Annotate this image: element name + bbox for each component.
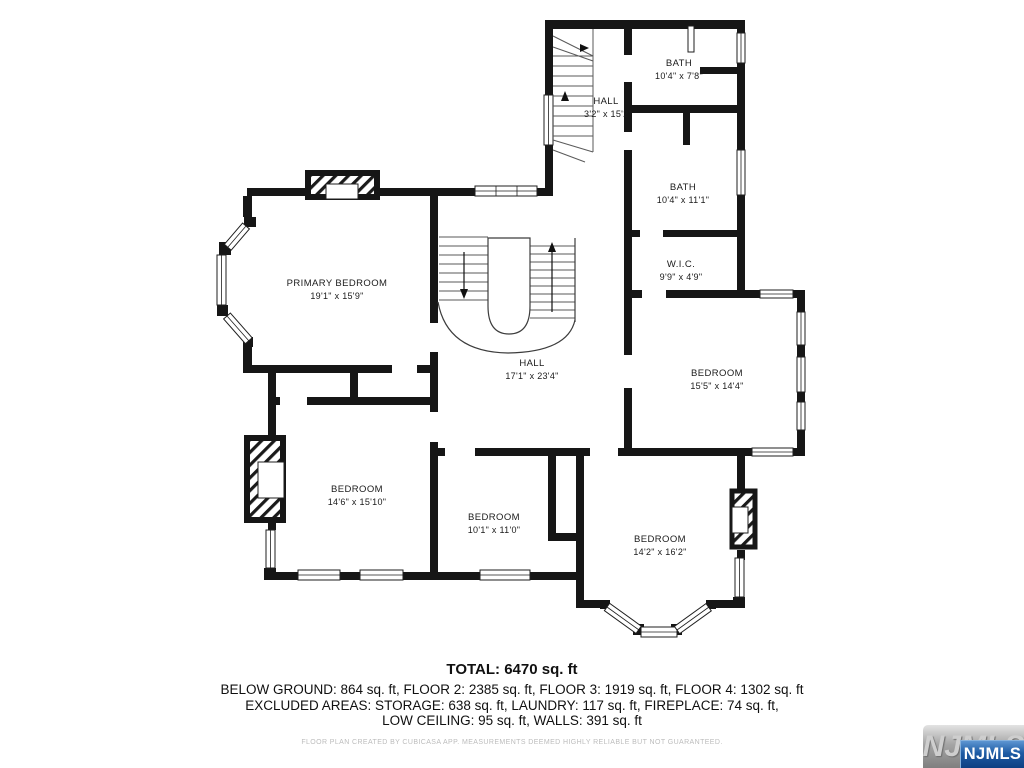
stairs-upper: [553, 29, 593, 162]
room-label-bedroom-bay: BEDROOM 14'2" x 16'2": [633, 534, 686, 557]
fireplace-left: [247, 438, 284, 520]
footer-disclaimer: FLOOR PLAN CREATED BY CUBICASA APP. MEAS…: [0, 739, 1024, 746]
svg-text:HALL: HALL: [519, 358, 544, 369]
svg-text:19'1" x 15'9": 19'1" x 15'9": [310, 291, 363, 301]
svg-text:BEDROOM: BEDROOM: [691, 368, 743, 379]
svg-text:3'2" x 15'2": 3'2" x 15'2": [584, 109, 632, 119]
svg-text:17'1" x 23'4": 17'1" x 23'4": [505, 371, 558, 381]
room-label-bath-top: BATH 10'4" x 7'8": [655, 58, 703, 81]
room-label-bedroom-center: BEDROOM 10'1" x 11'0": [468, 512, 521, 535]
footer-areas-line-1: BELOW GROUND: 864 sq. ft, FLOOR 2: 2385 …: [0, 682, 1024, 698]
svg-text:10'4" x 11'1": 10'4" x 11'1": [657, 195, 710, 205]
svg-text:BATH: BATH: [670, 182, 696, 193]
svg-text:BEDROOM: BEDROOM: [634, 534, 686, 545]
svg-text:9'9" x 4'9": 9'9" x 4'9": [660, 272, 703, 282]
chimney-top: [308, 173, 377, 199]
svg-text:BEDROOM: BEDROOM: [331, 484, 383, 495]
footer-summary: TOTAL: 6470 sq. ft BELOW GROUND: 864 sq.…: [0, 661, 1024, 746]
svg-text:PRIMARY BEDROOM: PRIMARY BEDROOM: [287, 278, 388, 289]
room-label-hall-main: HALL 17'1" x 23'4": [505, 358, 558, 381]
fireplace-right: [732, 491, 755, 547]
room-label-wic: W.I.C. 9'9" x 4'9": [660, 259, 703, 282]
room-label-bath-mid: BATH 10'4" x 11'1": [657, 182, 710, 205]
footer-areas-line-3: LOW CEILING: 95 sq. ft, WALLS: 391 sq. f…: [0, 713, 1024, 729]
room-label-bedroom-right: BEDROOM 15'5" x 14'4": [690, 368, 743, 391]
footer-total: TOTAL: 6470 sq. ft: [0, 661, 1024, 678]
stairs-main: [438, 237, 575, 353]
floorplan-svg: BATH 10'4" x 7'8" HALL 3'2" x 15'2" BATH…: [0, 0, 1024, 660]
svg-text:15'5" x 14'4": 15'5" x 14'4": [690, 381, 743, 391]
njmls-badge: NJMLS: [960, 740, 1024, 768]
svg-text:14'6" x 15'10": 14'6" x 15'10": [328, 497, 387, 507]
room-label-bedroom-left: BEDROOM 14'6" x 15'10": [328, 484, 387, 507]
room-label-primary-bedroom: PRIMARY BEDROOM 19'1" x 15'9": [287, 278, 388, 301]
svg-text:BEDROOM: BEDROOM: [468, 512, 520, 523]
svg-text:10'4" x 7'8": 10'4" x 7'8": [655, 71, 703, 81]
svg-text:W.I.C.: W.I.C.: [667, 259, 695, 270]
svg-text:BATH: BATH: [666, 58, 692, 69]
footer-areas-line-2: EXCLUDED AREAS: STORAGE: 638 sq. ft, LAU…: [0, 698, 1024, 714]
svg-text:10'1" x 11'0": 10'1" x 11'0": [468, 525, 521, 535]
svg-text:14'2" x 16'2": 14'2" x 16'2": [633, 547, 686, 557]
svg-text:HALL: HALL: [593, 96, 618, 107]
